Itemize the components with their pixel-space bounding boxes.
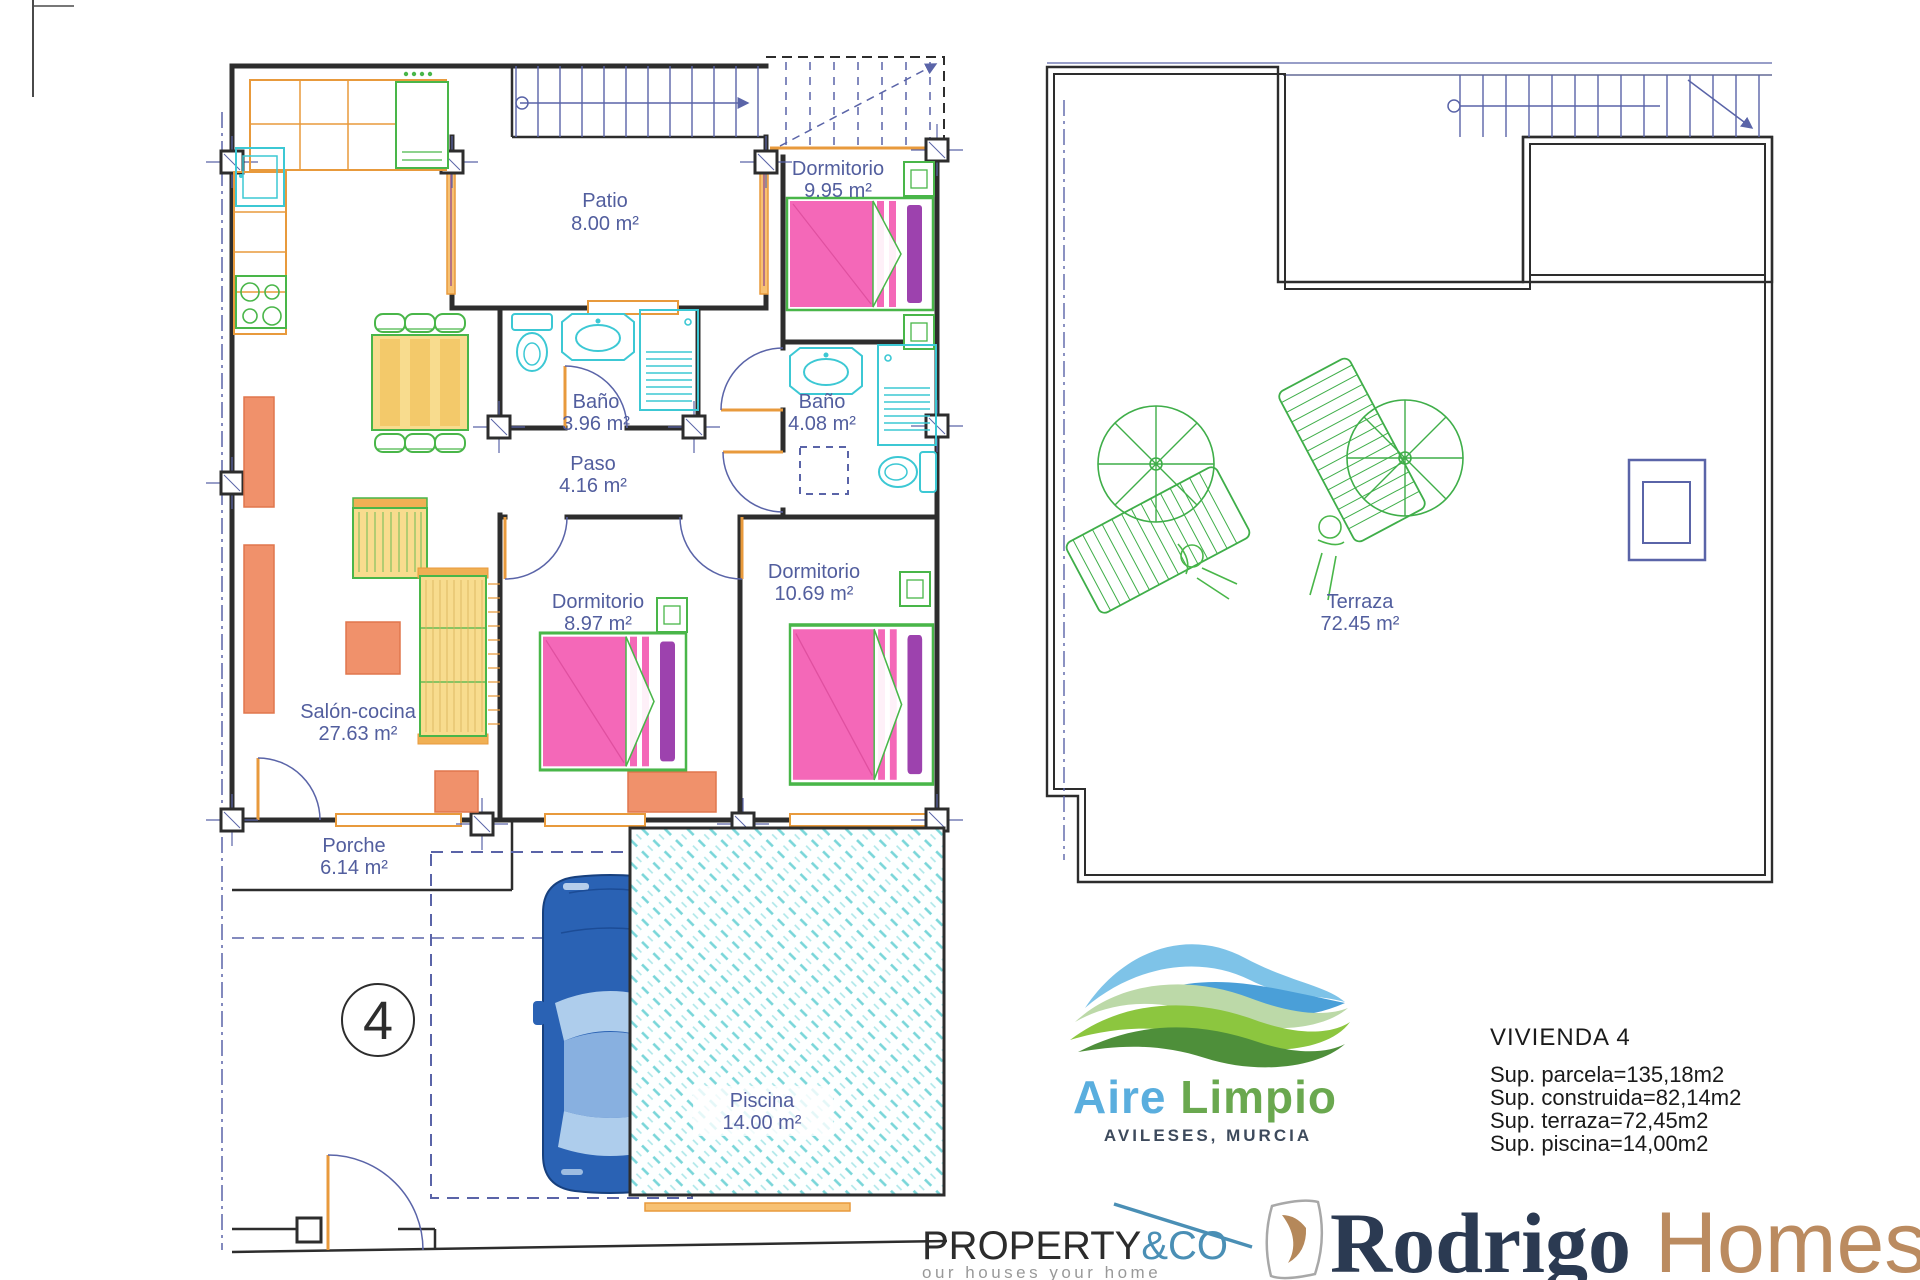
svg-text:4.16 m²: 4.16 m² xyxy=(559,475,627,497)
sheet-frame-corner xyxy=(33,0,74,97)
unit-number: 4 xyxy=(363,991,393,1051)
svg-text:10.69 m²: 10.69 m² xyxy=(775,583,854,605)
dashed-stairs-outline xyxy=(766,57,944,150)
plot-bottom-wall xyxy=(232,1218,947,1252)
room-label-porche: Porche xyxy=(322,835,385,857)
svg-text:8.97 m²: 8.97 m² xyxy=(564,613,632,635)
leaf-icon xyxy=(1267,1201,1322,1278)
room-label-dormitorio1: Dormitorio xyxy=(792,158,884,180)
room-label-terraza: Terraza xyxy=(1327,591,1395,613)
stair-enclosure xyxy=(512,66,766,137)
stair-bulkhead xyxy=(1523,137,1772,282)
coffee-table xyxy=(346,622,400,674)
floor-plan-sheet: 4 Patio 8.00 m² Dormitorio 9.95 m² Baño … xyxy=(0,0,1920,1280)
kitchen-sink-icon xyxy=(236,148,284,206)
brand-rodrigo: Rodrigo xyxy=(1330,1195,1631,1280)
skylight-chimney xyxy=(1629,460,1705,560)
svg-text:14.00 m²: 14.00 m² xyxy=(723,1112,802,1134)
svg-text:3.96 m²: 3.96 m² xyxy=(562,413,630,435)
info-line: Sup. terraza=72,45m2 xyxy=(1490,1108,1708,1133)
stairs-icon xyxy=(516,66,758,137)
ground-floor-plan: 4 Patio 8.00 m² Dormitorio 9.95 m² Baño … xyxy=(206,57,963,1252)
brand-limpio: Limpio xyxy=(1166,1071,1337,1123)
sofa xyxy=(418,568,500,744)
svg-text:8.00 m²: 8.00 m² xyxy=(571,213,639,235)
sun-lounger-icon xyxy=(1277,356,1463,600)
svg-text:72.45 m²: 72.45 m² xyxy=(1321,613,1400,635)
bed-icon xyxy=(787,198,933,310)
sun-lounger-icon xyxy=(1064,406,1252,615)
stairs-icon xyxy=(1448,75,1759,137)
bed-icon xyxy=(790,625,933,784)
side-table xyxy=(435,771,478,812)
armchair xyxy=(353,498,427,578)
unit-number-badge: 4 xyxy=(342,984,414,1056)
room-label-salon: Salón-cocina xyxy=(300,701,417,723)
sideboard xyxy=(244,545,274,713)
rodrigo-homes-logo: Rodrigo Homes xyxy=(1267,1195,1920,1280)
info-line: Sup. parcela=135,18m2 xyxy=(1490,1062,1724,1087)
room-label-bano1: Baño xyxy=(573,391,620,413)
brand-aire: Aire xyxy=(1073,1071,1166,1123)
aire-limpio-logo: Aire Limpio AVILESES, MURCIA xyxy=(1070,944,1350,1145)
terrace-plan: Terraza 72.45 m² xyxy=(1047,63,1772,882)
svg-text:PROPERTY&CO: PROPERTY&CO xyxy=(922,1224,1228,1268)
svg-text:27.63 m²: 27.63 m² xyxy=(319,723,398,745)
toilet-icon xyxy=(879,452,936,492)
brand-tagline: our houses your home xyxy=(922,1263,1161,1280)
brand-homes: Homes xyxy=(1631,1195,1920,1280)
info-title: VIVIENDA 4 xyxy=(1490,1024,1631,1051)
shower-door-dashed xyxy=(800,447,848,494)
svg-text:Rodrigo Homes: Rodrigo Homes xyxy=(1330,1195,1920,1280)
kitchen-counter xyxy=(234,72,448,334)
toilet-icon xyxy=(512,314,552,371)
dresser xyxy=(628,772,716,812)
stove-icon xyxy=(236,276,286,328)
sink-icon xyxy=(790,348,862,394)
info-block: VIVIENDA 4 Sup. parcela=135,18m2 Sup. co… xyxy=(1490,1024,1741,1156)
bed-icon xyxy=(540,633,686,770)
info-line: Sup. piscina=14,00m2 xyxy=(1490,1131,1708,1156)
sideboard xyxy=(244,397,274,507)
shower-icon xyxy=(640,310,698,410)
room-label-paso: Paso xyxy=(570,453,616,475)
brand-location: AVILESES, MURCIA xyxy=(1104,1126,1312,1145)
property-co-logo: PROPERTY&CO our houses your home xyxy=(922,1204,1252,1280)
room-label-piscina: Piscina xyxy=(730,1090,795,1112)
room-label-dormitorio2: Dormitorio xyxy=(552,591,644,613)
svg-text:Aire Limpio: Aire Limpio xyxy=(1073,1071,1337,1123)
info-line: Sup. construida=82,14m2 xyxy=(1490,1085,1741,1110)
room-label-bano2: Baño xyxy=(799,391,846,413)
pool xyxy=(630,828,944,1195)
sink-icon xyxy=(562,314,634,360)
brand-co: &CO xyxy=(1141,1224,1228,1268)
svg-text:4.08 m²: 4.08 m² xyxy=(788,413,856,435)
dining-table xyxy=(372,314,468,452)
brand-property: PROPERTY xyxy=(922,1224,1141,1268)
room-label-patio: Patio xyxy=(582,190,628,212)
wave-icon xyxy=(1070,944,1350,1067)
room-label-dormitorio3: Dormitorio xyxy=(768,561,860,583)
svg-text:9.95 m²: 9.95 m² xyxy=(804,180,872,202)
shower-icon xyxy=(878,345,936,445)
svg-text:6.14 m²: 6.14 m² xyxy=(320,857,388,879)
